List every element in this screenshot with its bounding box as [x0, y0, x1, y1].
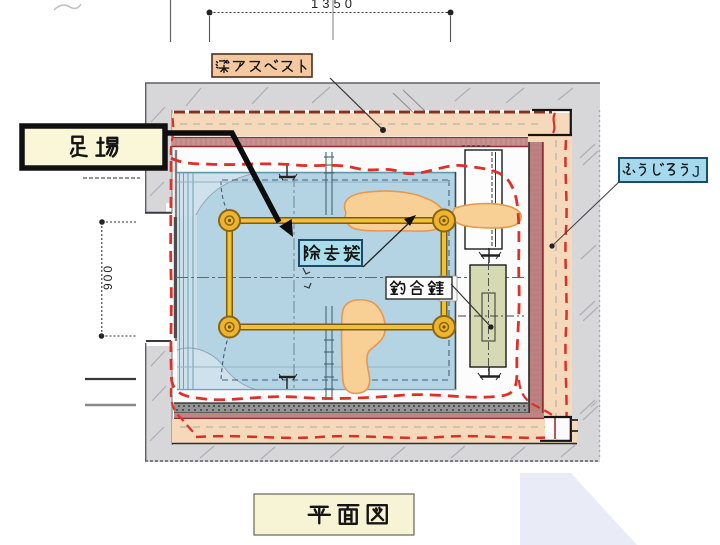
svg-text:J: J	[692, 164, 700, 181]
svg-text:1350: 1350	[311, 0, 356, 11]
svg-text:900: 900	[101, 264, 115, 290]
